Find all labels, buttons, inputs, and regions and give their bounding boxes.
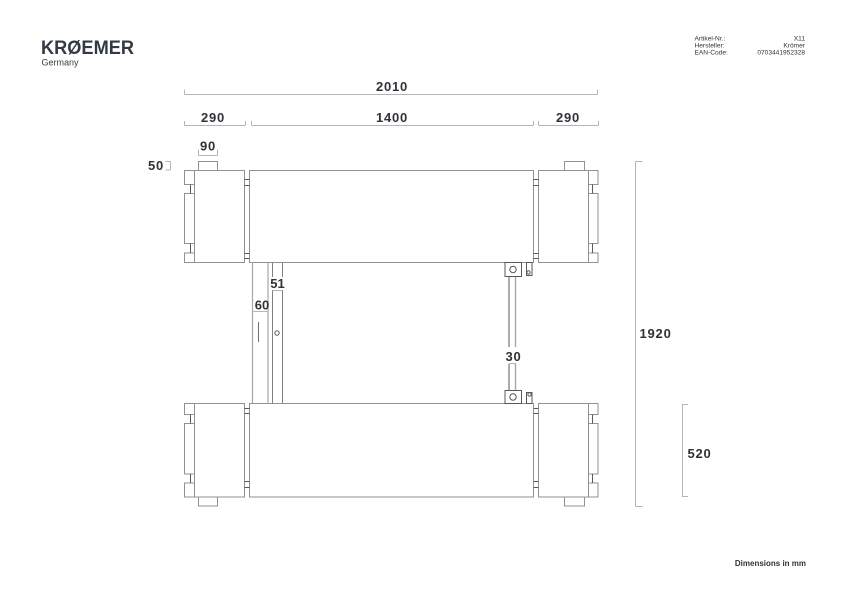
svg-text:0703441952328: 0703441952328 bbox=[757, 50, 805, 57]
svg-text:90: 90 bbox=[200, 139, 216, 154]
svg-text:X11: X11 bbox=[794, 36, 806, 43]
svg-text:Germany: Germany bbox=[42, 58, 80, 68]
svg-text:KRØEMER: KRØEMER bbox=[41, 38, 134, 59]
svg-text:1400: 1400 bbox=[376, 110, 408, 125]
svg-text:51: 51 bbox=[270, 276, 284, 291]
svg-text:290: 290 bbox=[201, 110, 225, 125]
svg-text:EAN-Code:: EAN-Code: bbox=[695, 50, 729, 57]
svg-text:50: 50 bbox=[148, 158, 164, 173]
svg-text:Artikel-Nr.:: Artikel-Nr.: bbox=[695, 36, 726, 43]
svg-text:Krömer: Krömer bbox=[783, 43, 805, 50]
svg-text:Hersteller:: Hersteller: bbox=[695, 43, 725, 50]
svg-text:290: 290 bbox=[556, 110, 580, 125]
svg-text:60: 60 bbox=[255, 298, 269, 313]
svg-text:30: 30 bbox=[505, 349, 521, 364]
svg-text:520: 520 bbox=[688, 446, 712, 461]
svg-text:Dimensions in mm: Dimensions in mm bbox=[735, 559, 806, 568]
svg-text:2010: 2010 bbox=[376, 79, 408, 94]
svg-text:1920: 1920 bbox=[640, 326, 672, 341]
